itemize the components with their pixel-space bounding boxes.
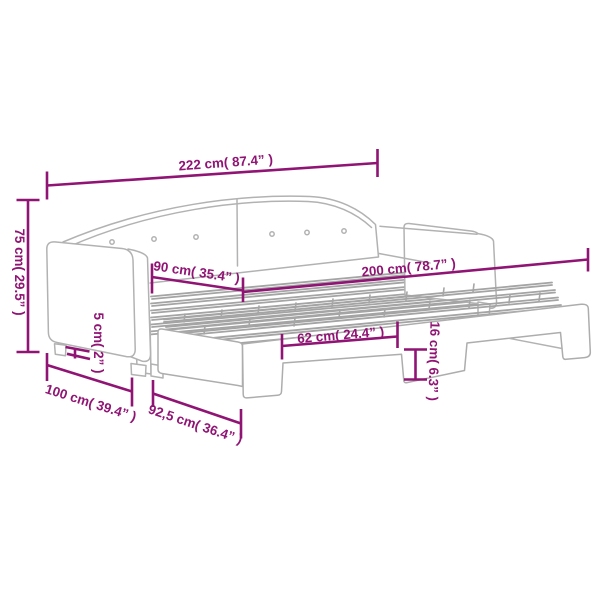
svg-text:75 cm( 29.5” ): 75 cm( 29.5” ) [12, 228, 27, 315]
svg-text:5 cm( 2” ): 5 cm( 2” ) [91, 312, 106, 373]
svg-text:16 cm( 6.3” ): 16 cm( 6.3” ) [425, 321, 442, 401]
